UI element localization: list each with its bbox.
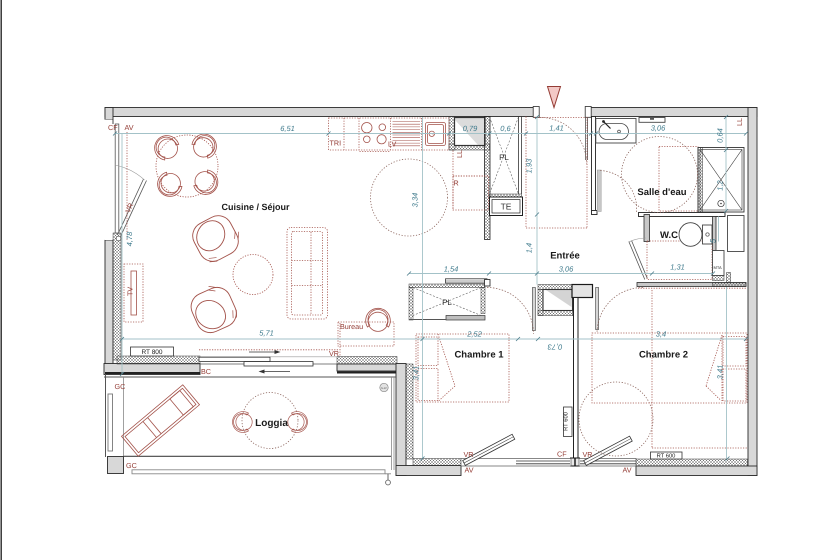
svg-text:AV: AV xyxy=(125,123,134,132)
svg-text:1,54: 1,54 xyxy=(444,265,459,274)
svg-text:3,06: 3,06 xyxy=(559,265,574,274)
svg-text:0,6: 0,6 xyxy=(500,124,511,133)
svg-text:3,34: 3,34 xyxy=(411,193,420,208)
svg-text:Cuisine / Séjour: Cuisine / Séjour xyxy=(221,202,290,212)
svg-text:AV: AV xyxy=(623,466,632,475)
svg-text:1,2: 1,2 xyxy=(716,179,725,190)
svg-text:1,4: 1,4 xyxy=(525,243,534,253)
svg-text:MTA: MTA xyxy=(714,265,722,270)
svg-text:TV: TV xyxy=(126,287,135,296)
svg-text:GC: GC xyxy=(115,382,126,391)
svg-text:RT 600: RT 600 xyxy=(563,412,570,431)
svg-text:BC: BC xyxy=(201,367,211,376)
svg-text:Chambre 2: Chambre 2 xyxy=(639,350,688,361)
svg-text:TE: TE xyxy=(501,202,512,212)
svg-text:W.C: W.C xyxy=(660,230,678,241)
svg-text:R: R xyxy=(454,179,459,188)
svg-text:CF: CF xyxy=(557,450,567,459)
svg-text:3,06: 3,06 xyxy=(651,124,666,133)
svg-text:0,79: 0,79 xyxy=(463,124,478,133)
svg-text:TRI: TRI xyxy=(330,139,342,148)
svg-text:Loggia: Loggia xyxy=(255,418,288,429)
svg-text:2,52: 2,52 xyxy=(466,330,482,339)
svg-text:Chambre 1: Chambre 1 xyxy=(454,350,504,361)
svg-text:0,64: 0,64 xyxy=(716,128,725,143)
svg-text:N-6P: N-6P xyxy=(381,387,387,390)
svg-text:LL: LL xyxy=(455,150,464,158)
svg-text:VR: VR xyxy=(583,450,593,459)
svg-text:Salle d'eau: Salle d'eau xyxy=(637,187,686,198)
svg-text:VR: VR xyxy=(329,349,339,358)
svg-text:AV: AV xyxy=(465,466,474,475)
svg-text:4,78: 4,78 xyxy=(125,231,134,246)
svg-text:PL: PL xyxy=(499,153,509,162)
svg-text:5,71: 5,71 xyxy=(259,329,274,338)
svg-text:3,4: 3,4 xyxy=(656,330,666,339)
svg-text:6,51: 6,51 xyxy=(280,124,295,133)
svg-text:0,73: 0,73 xyxy=(547,343,562,352)
svg-text:CF: CF xyxy=(108,123,118,132)
svg-text:LV: LV xyxy=(388,140,396,149)
svg-text:3,41: 3,41 xyxy=(412,366,421,381)
svg-text:1,31: 1,31 xyxy=(670,263,685,272)
svg-text:1,41: 1,41 xyxy=(549,124,564,133)
svg-text:RT 600: RT 600 xyxy=(657,453,676,460)
svg-text:LL: LL xyxy=(735,118,744,126)
svg-text:Entrée: Entrée xyxy=(550,251,580,262)
svg-text:3,41: 3,41 xyxy=(716,365,725,380)
svg-text:VR: VR xyxy=(464,450,474,459)
svg-text:Bureau: Bureau xyxy=(340,322,363,331)
svg-text:PL: PL xyxy=(442,298,452,307)
svg-text:GC: GC xyxy=(126,461,137,470)
svg-text:1,93: 1,93 xyxy=(525,158,534,173)
svg-text:RT 800: RT 800 xyxy=(141,349,162,356)
